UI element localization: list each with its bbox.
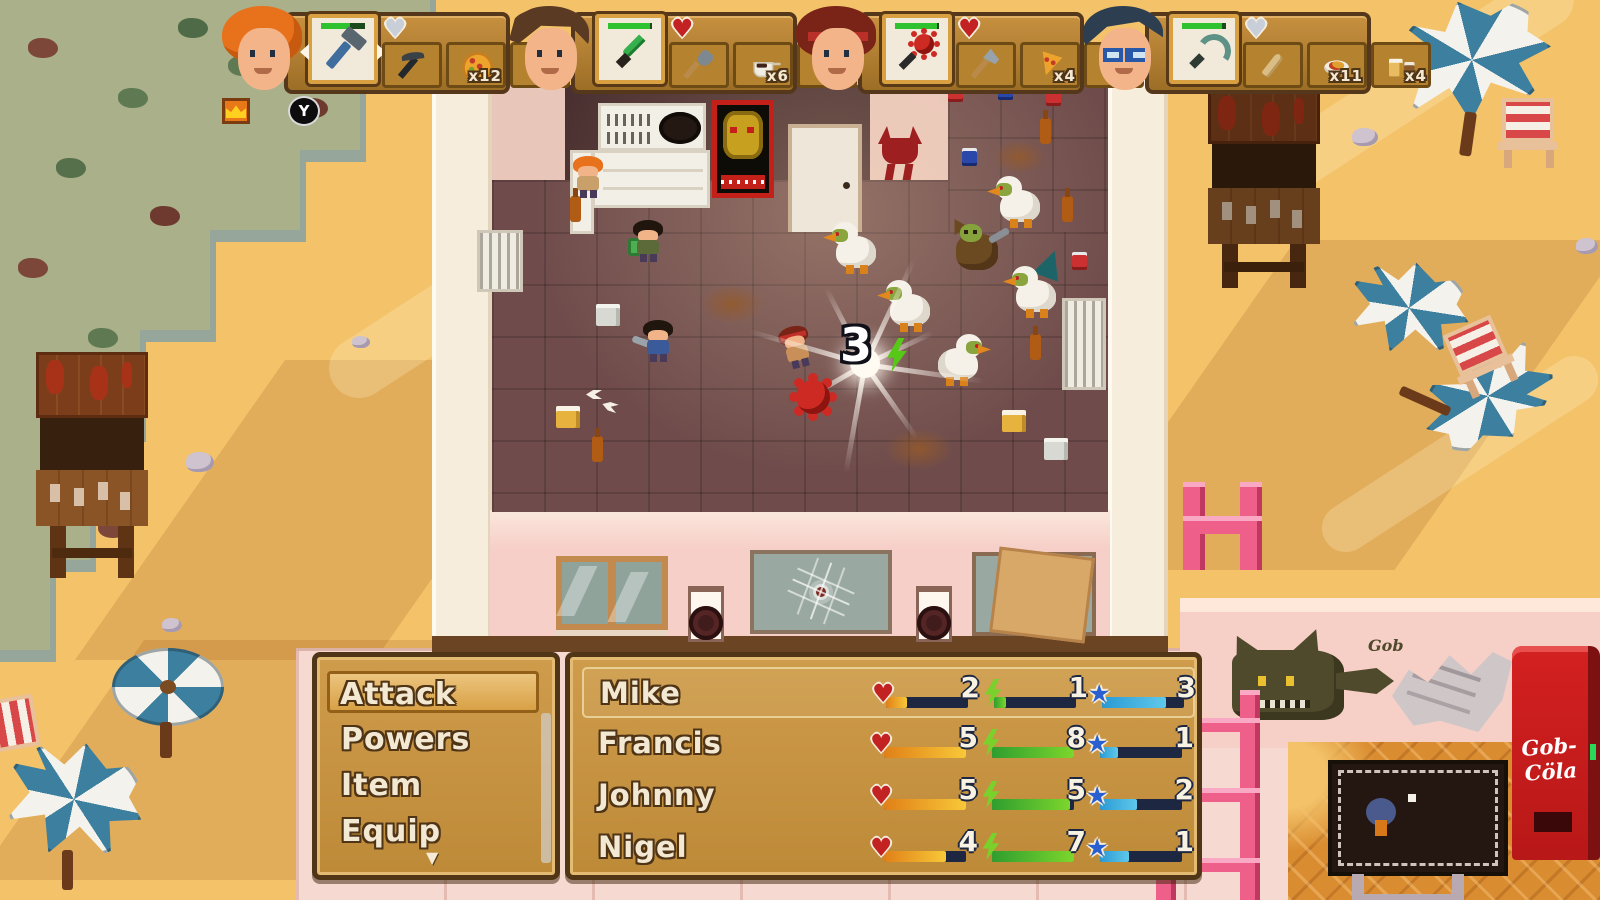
character-legs [791,360,800,369]
power-value: 5 [1067,773,1086,806]
party-row-johnny[interactable]: Johnny ♥ 5 5 ★ 2 [582,771,1195,822]
tower-shade [1212,144,1316,188]
dirt-patch [700,284,764,324]
party-row-francis[interactable]: Francis ♥ 5 8 ★ 1 [582,719,1195,770]
cola-label: Gob- Cöla [1510,731,1589,786]
menu-item-powers[interactable]: Powers [331,719,535,761]
goblin-enemy [954,222,1002,276]
back-door [788,124,862,232]
chair-leg [1546,150,1554,168]
mural-eyes [1258,676,1266,686]
beer-mug [1002,410,1026,432]
star-stat: ★ 1 [1086,823,1194,874]
hp-value: 5 [959,721,978,754]
party-status-panel: Mike ♥ 2 1 ★ 3 Francis ♥ 5 [565,652,1202,880]
cola-label-line2: Cöla [1512,756,1590,786]
player-hud-3: ♥♥♥♥♥ x4 x4 [796,8,1084,126]
window-double [556,556,668,630]
graffiti-text: Gob [1368,636,1404,655]
bottle [1030,334,1041,360]
bush [150,206,180,226]
chair-leg [1465,379,1480,399]
menu-item-attack[interactable]: Attack [327,671,539,713]
hp-bar [886,697,968,708]
beach-umbrella [112,648,224,726]
sign-board [1328,760,1508,876]
gob-cola-vending-machine: Gob- Cöla [1512,646,1600,860]
item-count: x12 [468,67,502,85]
health-hearts: ♥♥♥♥♥ [1245,16,1369,42]
character-legs [650,354,657,362]
goose-feet [846,265,854,274]
player3-portrait [792,6,880,96]
party-member-name: Francis [598,726,722,760]
bottle [1062,196,1073,222]
cabinet-vent [607,132,651,144]
item-slot[interactable]: x4 [1371,42,1431,88]
portrait-face [238,28,290,90]
beach-chair [1496,94,1562,170]
party-character-wrench [642,320,674,362]
umbrella-knob [160,680,176,694]
power-bar [992,747,1074,758]
goose-enemy [832,222,876,272]
weapon-slot[interactable] [1169,14,1239,84]
game-screen: Gob Gob- Cöla [0,0,1600,900]
pink-scaffold [1183,516,1262,534]
item-slot[interactable] [382,42,442,88]
star-value: 3 [1177,671,1196,704]
beer-mug [1044,438,1068,460]
goose-feet [1026,309,1034,318]
building-left-wall [432,80,492,648]
tower-legbar [52,548,132,558]
menu-item-equip[interactable]: Equip [331,811,535,853]
umbrella-pole [62,850,73,890]
item-slot[interactable]: x6 [733,42,793,88]
health-hearts: ♥♥♥♥♥ [384,16,508,42]
dirt-patch [884,428,954,470]
power-value: 8 [1067,721,1086,754]
star-icon: ★ [1088,679,1110,708]
building-right-wall [1108,80,1168,648]
star-icon: ★ [1086,781,1108,810]
rock [162,618,182,632]
item-slot[interactable]: x4 [1020,42,1080,88]
heart-icon: ♥ [870,833,892,862]
window-boarded [972,552,1096,636]
hp-stat: ♥ 5 [870,719,978,770]
weapon-icon [1185,30,1227,72]
heart-icon: ♥ [870,729,892,758]
star-bar [1100,851,1182,862]
player-hud-2: ♥♥♥♥♥ x6 x3 [509,8,797,126]
beer-mug [556,406,580,428]
power-bar [994,697,1076,708]
durability-bar [1182,23,1226,29]
rock [352,336,370,348]
party-character-orange [572,156,604,198]
counter-drawer-line [603,187,703,190]
item-slots: x11 x4 [1243,42,1371,88]
goose-enemy [996,176,1040,226]
item-slots: x6 x3 [669,42,797,88]
power-bar [992,851,1074,862]
star-bar [1102,697,1184,708]
item-icon [969,49,1003,83]
durability-bar [895,23,939,29]
goose-enemy-wizard [1012,266,1056,316]
heart-icon: ♥ [870,781,892,810]
chair-seat [0,694,41,753]
power-fill [994,697,1006,708]
window-cracked [750,550,892,634]
chair-leg [1504,150,1512,168]
rock [1576,238,1598,254]
heart-empty-icon: ♥ [1245,16,1266,42]
power-stat: 8 [978,719,1086,770]
hp-fill [884,799,966,810]
character-legs [580,190,587,198]
item-slot[interactable] [669,42,729,88]
dirt-patch [992,140,1046,174]
player2-portrait [505,6,593,96]
vent-fan [688,586,724,642]
goose-feet [900,323,908,332]
crown-icon [222,98,250,124]
health-hearts: ♥♥♥♥♥ [958,16,1082,42]
party-member-name: Johnny [598,778,716,812]
chair-leg [1504,362,1519,382]
menu-scrollbar[interactable] [541,713,551,863]
devil-head [882,138,918,164]
star-value: 2 [1175,773,1194,806]
hp-bar [884,851,966,862]
character-body [637,240,659,255]
item-count: x11 [1329,67,1363,85]
sign-legbar [1352,894,1464,900]
bush [28,38,58,58]
bottle [592,436,603,462]
star-bar [1100,799,1182,810]
damage-number: 3 [840,318,872,372]
party-member-name: Mike [600,676,681,710]
durability-fill [608,23,650,29]
portrait-face [812,28,864,90]
goose-feet [1010,219,1018,228]
bush [18,258,48,278]
weapon-slot[interactable] [882,14,952,84]
bottle [570,196,581,222]
hp-stat: ♥ 4 [870,823,978,874]
heart-full-icon: ♥ [958,16,979,42]
tower-legbar [1224,262,1304,272]
mace-weapon [796,380,830,414]
poster-text-scribble [721,175,765,189]
bush [118,88,148,108]
tower-wall [36,470,148,526]
star-stat: ★ 2 [1086,771,1194,822]
weapon-slot[interactable] [308,14,378,84]
star-bar [1100,747,1182,758]
soda-can [962,148,977,166]
star-value: 1 [1175,721,1194,754]
item-slots: x4 x4 [956,42,1084,88]
menu-item-item[interactable]: Item [331,765,535,807]
tower-shade [40,418,144,470]
character-legs [640,254,647,262]
hp-bar [884,747,966,758]
item-count: x4 [1405,67,1427,85]
heart-empty-icon: ♥ [384,16,405,42]
item-slot[interactable] [956,42,1016,88]
radiator [477,230,523,292]
heart-full-icon: ♥ [671,16,692,42]
power-value: 1 [1069,671,1088,704]
kitchen-counter [592,150,710,208]
menu-more-arrow[interactable]: ▼ [426,848,438,867]
durability-fill [1182,23,1222,29]
hp-fill [884,851,946,862]
bush [178,18,208,38]
character-body [647,340,669,355]
party-row-mike[interactable]: Mike ♥ 2 1 ★ 3 [582,667,1195,718]
power-value: 7 [1067,825,1086,858]
party-member-name: Nigel [598,830,688,864]
durability-fill [895,23,937,29]
chair-frame [1498,142,1558,150]
star-value: 1 [1175,825,1194,858]
item-icon [682,49,716,83]
power-stat: 7 [978,823,1086,874]
sign-border [1338,770,1498,866]
umbrella-pole [160,722,172,758]
portrait-face [525,28,577,90]
power-fill [992,747,1074,758]
item-slot[interactable]: x11 [1307,42,1367,88]
star-icon: ★ [1086,729,1108,758]
devil-graffiti [872,126,928,184]
sign-spark [1408,794,1416,802]
mural-knife [1336,668,1394,694]
cola-led [1590,744,1596,760]
star-icon: ★ [1086,833,1108,862]
y-button-prompt[interactable]: Y [288,96,320,126]
player4-portrait [1079,6,1167,96]
soda-can [1072,252,1087,270]
hp-value: 2 [961,671,980,704]
devil-legs [885,164,896,180]
counter-drawer-line [603,169,703,172]
bush [56,158,86,178]
fan-blades [917,606,951,640]
sign-figure [1366,798,1396,826]
goblin-face [960,224,982,242]
item-count: x6 [767,67,789,85]
party-row-nigel[interactable]: Nigel ♥ 4 7 ★ 1 [582,823,1195,874]
rock [186,452,214,472]
character-body [577,176,599,191]
durability-bar [321,23,365,29]
hp-value: 4 [959,825,978,858]
tower-roof [36,352,148,418]
chair-seat [1502,98,1554,142]
item-slot[interactable] [1243,42,1303,88]
weapon-icon [611,30,653,72]
rock [1352,128,1378,146]
hp-fill [884,747,966,758]
glasses-icon [1103,48,1123,62]
bush [88,328,118,348]
glass-crack [816,587,826,597]
star-stat: ★ 3 [1088,669,1196,720]
power-bar [992,799,1074,810]
durability-bar [608,23,652,29]
star-stat: ★ 1 [1086,719,1194,770]
power-stat: 1 [980,669,1088,720]
power-fill [992,851,1074,862]
item-slots: x12 x6 [382,42,510,88]
player1-portrait [218,6,306,96]
weapon-icon [324,30,366,72]
item-icon [395,49,429,83]
cola-dispenser-slot [1534,812,1572,832]
health-hearts: ♥♥♥♥♥ [671,16,795,42]
fan-blades [689,606,723,640]
party-character-backpack [632,220,664,262]
wood-board [989,546,1095,643]
tower-wall [1208,188,1320,244]
player-hud-4: ♥♥♥♥♥ x11 x4 [1083,8,1371,126]
vent-fan [916,586,952,642]
cola-label-line1: Gob- [1510,731,1588,761]
weapon-slot[interactable] [595,14,665,84]
item-count: x4 [1054,67,1076,85]
power-stat: 5 [978,771,1086,822]
beer-mug [596,304,620,326]
player-hud-1: ♥♥♥♥♥ x12 x6 Y [222,8,510,126]
hp-value: 5 [959,773,978,806]
weapon-icon [898,30,940,72]
heart-icon: ♥ [872,679,894,708]
radiator [1062,298,1106,390]
lifeguard-tower [36,352,148,578]
battle-menu: Attack Powers Item Equip ▼ [312,652,560,880]
hp-stat: ♥ 5 [870,771,978,822]
star-fill [1102,697,1166,708]
hp-stat: ♥ 2 [872,669,980,720]
hp-bar [884,799,966,810]
item-slot[interactable]: x12 [446,42,506,88]
item-icon [1256,49,1290,83]
power-fill [992,799,1070,810]
umbrella-pole [1459,111,1477,156]
